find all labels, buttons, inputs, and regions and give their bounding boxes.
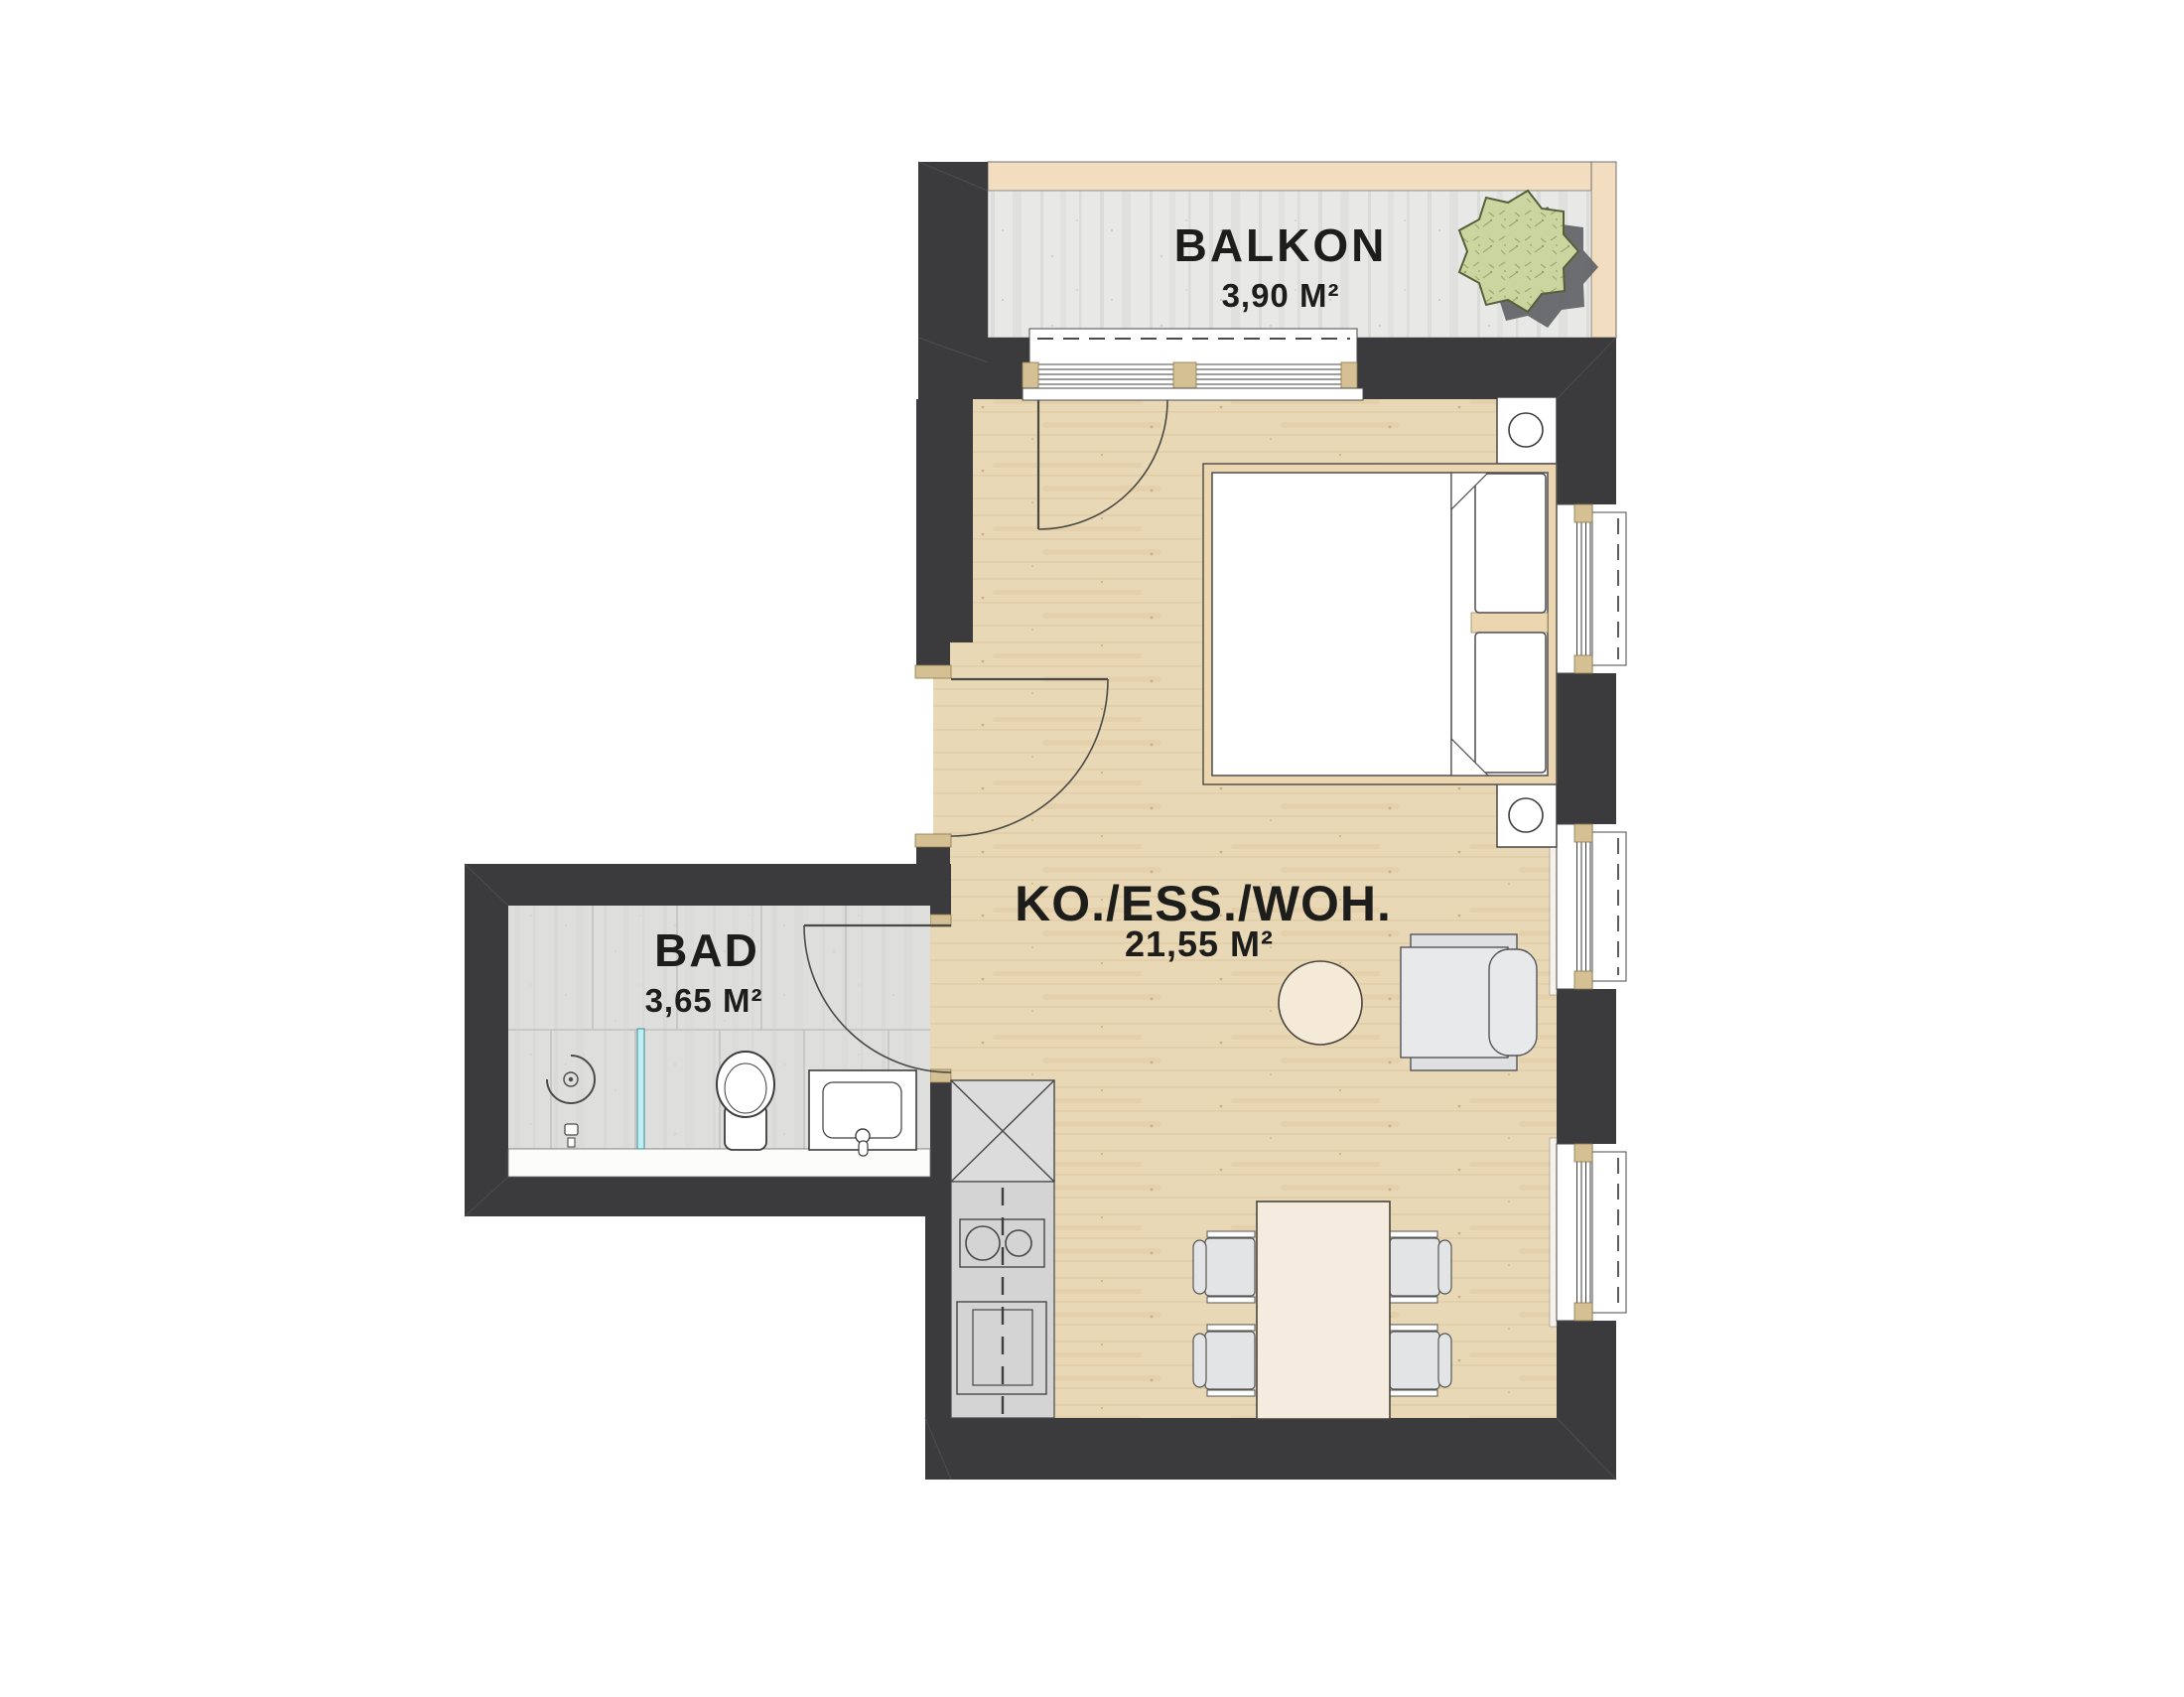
double-bed-icon: [1203, 464, 1557, 784]
pillow-icon: [1475, 633, 1546, 773]
window-bed: [1550, 498, 1626, 679]
wall-right-1: [1557, 399, 1616, 504]
wall-right-2: [1557, 673, 1616, 824]
entry-jamb-top: [915, 665, 951, 678]
window-dining: [1550, 1138, 1626, 1327]
windows: [1550, 498, 1626, 1327]
balcony-area: 3,90 M²: [1222, 277, 1340, 314]
wall-bath-bottom: [465, 1177, 951, 1216]
table-lamp-icon: [1509, 413, 1543, 447]
dining-chair-icon: [1193, 1231, 1255, 1303]
wall-bottom: [925, 1418, 1616, 1480]
entry-threshold: [933, 678, 951, 834]
side-table-icon: [1279, 961, 1362, 1045]
window-sitting: [1550, 818, 1626, 995]
wall-bath-right-lower: [930, 1082, 951, 1216]
wall-right-4: [1557, 1321, 1616, 1480]
balcony-label: BALKON: [1174, 219, 1388, 271]
dining-chair-icon: [1390, 1325, 1451, 1396]
pillow-icon: [1475, 474, 1546, 613]
living-area: 21,55 M²: [1125, 923, 1274, 964]
dining-table-icon: [1257, 1202, 1390, 1419]
wall-left-lower: [925, 1216, 951, 1418]
balcony-door-outer-sill: [1029, 329, 1357, 364]
balcony-door-inner-sill: [1023, 388, 1363, 400]
wall-right-3: [1557, 989, 1616, 1144]
balcony-railing-top: [988, 162, 1616, 191]
wall-bath-top: [465, 864, 951, 906]
entry-jamb-bottom: [915, 834, 951, 847]
wall-left-mid: [916, 847, 950, 864]
toilet-icon: [717, 1052, 774, 1150]
table-lamp-icon: [1509, 798, 1543, 832]
kitchen: [951, 1080, 1054, 1418]
dining-chair-icon: [1390, 1231, 1451, 1303]
wall-pilaster: [950, 399, 973, 642]
wall-left-upper: [916, 399, 950, 665]
bath-label: BAD: [654, 924, 759, 976]
armchair-icon: [1401, 934, 1537, 1070]
glass-partition-icon: [637, 1029, 644, 1149]
washbasin-icon: [809, 1070, 916, 1156]
bath-area: 3,65 M²: [645, 982, 763, 1019]
wall-bath-right-upper: [930, 864, 951, 915]
dining-chair-icon: [1193, 1325, 1255, 1396]
wall-bath-left: [465, 864, 508, 1216]
floor-plan: BALKON 3,90 M²: [0, 0, 2184, 1697]
bath-threshold: [930, 926, 950, 1069]
balcony-railing-right: [1591, 162, 1616, 338]
